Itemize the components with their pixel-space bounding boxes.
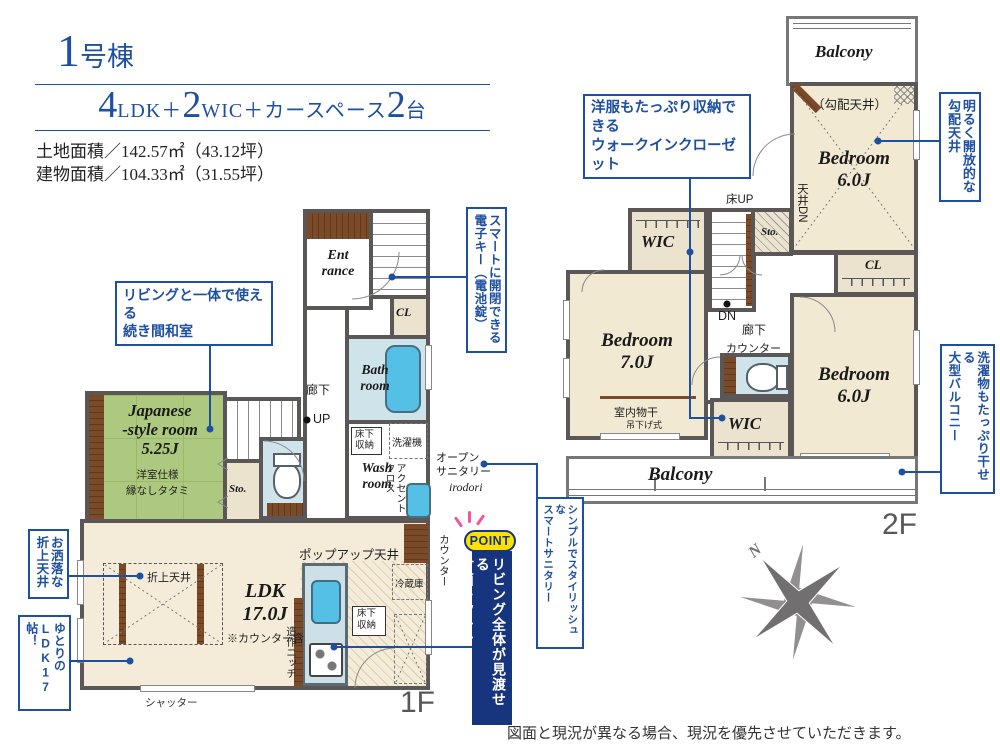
callout-washitsu: リビングと一体で使える 続き間和室: [115, 281, 273, 346]
bathroom-label: Bath room: [350, 362, 400, 393]
spec-wic-label: WIC＋カースペース: [201, 94, 386, 123]
railing: [569, 489, 915, 496]
hanging-label: 吊下げ式: [626, 418, 662, 431]
toilet-icon: [746, 363, 780, 392]
japanese-room-label: Japanese -style room 5.25J: [100, 402, 220, 459]
spec-line: 4 LDK＋ 2 WIC＋カースペース 2 台: [35, 86, 490, 124]
entrance-label: Ent rance: [308, 248, 368, 280]
leader-dot: [137, 573, 144, 580]
storage-1f-label: Sto.: [229, 483, 246, 496]
point-badge: POINT: [464, 530, 516, 552]
wic-top-label: WIC: [641, 232, 674, 252]
spec-ldk-label: LDK＋: [117, 94, 182, 123]
fridge-label: 冷蔵庫: [395, 576, 424, 590]
building-number: 1: [57, 25, 80, 76]
balcony-top-label: Balcony: [815, 42, 873, 62]
toilet-room-2f: [720, 353, 792, 398]
japanese-room-note: 洋室仕様 縁なしタタミ: [126, 468, 189, 500]
disclaimer: 図面と現況が異なる場合、現況を優先させていただきます。: [507, 722, 911, 743]
accent-cloth-label: アクセント クロス: [383, 463, 405, 513]
spec-car-label: 台: [406, 94, 427, 123]
drying-rod: [600, 396, 696, 399]
window: [425, 345, 432, 390]
entrance-step: [307, 213, 369, 239]
toilet-room-1f: [259, 437, 307, 520]
stove: [309, 643, 343, 677]
building-area: 建物面積／104.33㎡（31.55坪）: [36, 160, 274, 185]
building-suffix: 号棟: [80, 42, 134, 72]
leader-dot: [875, 138, 882, 145]
callout-smart-key: スマートに開閉できる 電子キー（電池錠）: [466, 207, 507, 353]
closet-2f-label: CL: [865, 258, 882, 273]
window: [563, 358, 570, 398]
sink: [311, 580, 341, 624]
ldk-note: ※カウンター含: [227, 630, 304, 646]
window: [77, 618, 84, 663]
spec-ldk-count: 4: [98, 86, 117, 124]
spec-wic-count: 2: [182, 86, 201, 124]
ldk-label: LDK 17.0J: [230, 580, 300, 626]
underfloor-storage2-label: 床下 収納: [357, 608, 376, 632]
bedroom2-label: Bedroom 7.0J: [590, 330, 684, 374]
floor1-label: 1F: [400, 686, 435, 720]
sloped-ceiling-label: （勾配天井）: [812, 94, 887, 113]
callout-wic: 洋服もたっぷり収納できる ウォークインクローゼット: [583, 94, 751, 179]
underfloor-storage-label: 床下 収納: [355, 429, 374, 452]
floorplan-flyer: 1号棟 4 LDK＋ 2 WIC＋カースペース 2 台 土地面積／142.57㎡…: [0, 0, 1000, 750]
up-label: UP: [313, 412, 330, 426]
callout-sloped: 明るく開放的な 勾配天井: [939, 92, 981, 202]
leader-line: [902, 471, 941, 473]
balcony-bottom: [566, 456, 918, 504]
page-title: 1号棟: [57, 28, 134, 74]
washer-label: 洗濯機: [392, 434, 422, 449]
leader-line: [878, 140, 939, 142]
window: [913, 330, 920, 385]
washbasin: [406, 483, 431, 518]
railing: [793, 23, 911, 29]
callout-yutori: ゆとりの LDK17帖！: [18, 615, 71, 711]
counter-kitchen-label: カウンター: [437, 534, 452, 587]
stair-marker-dot: [304, 417, 311, 424]
point-banner: リビング全体が見渡せる 対面キッチン: [472, 551, 512, 725]
floor-up-label: 床UP: [726, 191, 753, 207]
hallway-1f-label: 廊下: [306, 381, 330, 398]
stair-marker-dot: [724, 301, 731, 308]
callout-oshare: お洒落な 折上天井: [28, 529, 69, 599]
pillar: [197, 564, 204, 644]
window: [913, 110, 920, 160]
storage-2f-label: Sto.: [761, 226, 778, 239]
balcony-bottom-label: Balcony: [648, 464, 712, 486]
wic-bottom-label: WIC: [728, 414, 761, 434]
divider: [35, 130, 490, 131]
shutter-window: [140, 685, 255, 692]
bedroom3-label: Bedroom 6.0J: [812, 364, 896, 408]
sparkle-icon: [468, 511, 471, 523]
toilet-cabinet: [724, 357, 736, 394]
floor2-label: 2F: [882, 508, 917, 542]
leader-line: [689, 417, 722, 419]
bedroom1-label: Bedroom 6.0J: [812, 148, 896, 192]
leader-dot: [207, 426, 214, 433]
leader-dot: [389, 274, 396, 281]
sparkle-icon: [476, 514, 485, 526]
window: [563, 300, 570, 340]
shutter-label: シャッター: [145, 695, 198, 710]
irodori-label: irodori: [449, 480, 483, 495]
hatch-corner: [894, 86, 914, 104]
window: [600, 433, 680, 440]
closet-1f-label: CL: [396, 306, 411, 320]
stairs-1f-upper: [369, 209, 430, 299]
toilet-icon: [273, 463, 301, 499]
leader-line: [392, 276, 467, 278]
land-area: 土地面積／142.57㎡（43.12坪）: [36, 137, 274, 162]
dining-space-box: [394, 614, 427, 684]
callout-sanitary: シンプルでスタイリッシュな スマートサニタリー: [536, 497, 584, 649]
closet-pole: [842, 278, 910, 286]
spec-car-count: 2: [387, 86, 406, 124]
counter-kitchen-wood: [404, 524, 428, 563]
leader-dot: [481, 461, 488, 468]
closet-pole: [718, 442, 784, 450]
leader-dot: [331, 644, 338, 651]
leader-dot: [687, 249, 694, 256]
compass-rose-icon: N: [728, 532, 868, 672]
leader-line: [536, 463, 538, 499]
leader-dot: [127, 658, 134, 665]
toilet-counter: [267, 503, 303, 516]
toilet-tank-icon: [776, 365, 788, 390]
kitchen-counter: [302, 563, 348, 686]
leader-line: [334, 646, 473, 648]
leader-dot: [899, 469, 906, 476]
compass-north-label: N: [745, 540, 767, 562]
window: [77, 560, 84, 605]
railing-post: [764, 477, 766, 491]
popup-ceiling-label: ポップアップ天井: [299, 544, 399, 563]
callout-balcony: 洗濯物もたっぷり干せる 大型バルコニー: [940, 344, 995, 494]
ceiling-dn-label: 天井DN: [794, 183, 810, 223]
folded-ceiling-label: 折上天井: [147, 569, 191, 585]
hallway-2f-label: 廊下: [742, 321, 766, 338]
dn-label: DN: [718, 309, 736, 323]
leader-line: [484, 463, 538, 465]
toilet-tank-icon: [273, 453, 301, 467]
leader-line: [60, 575, 140, 577]
leader-dot: [719, 415, 726, 422]
sparkle-icon: [454, 516, 463, 528]
